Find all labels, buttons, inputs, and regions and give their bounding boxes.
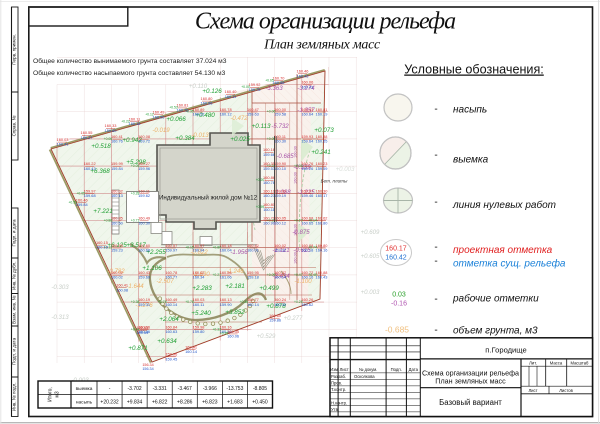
svg-text:+2.181: +2.181 bbox=[225, 283, 244, 290]
svg-text:160.63: 160.63 bbox=[165, 329, 177, 334]
svg-text:160.94: 160.94 bbox=[193, 248, 206, 253]
svg-text:160.99: 160.99 bbox=[263, 220, 275, 225]
svg-text:Инв. № дубл.: Инв. № дубл. bbox=[11, 262, 16, 290]
svg-text:Лист: Лист bbox=[340, 367, 349, 372]
svg-text:0.03: 0.03 bbox=[392, 292, 406, 299]
svg-text:159.84: 159.84 bbox=[76, 202, 89, 207]
svg-text:160.22: 160.22 bbox=[193, 112, 205, 117]
svg-text:-13.753: -13.753 bbox=[226, 386, 243, 392]
svg-text:Базовый вариант: Базовый вариант bbox=[439, 398, 502, 407]
svg-text:Дата: Дата bbox=[409, 367, 419, 372]
svg-text:Подп.: Подп. bbox=[391, 367, 402, 372]
svg-text:+1.683: +1.683 bbox=[227, 400, 243, 406]
svg-text:+0.15: +0.15 bbox=[185, 246, 194, 250]
svg-text:159.19: 159.19 bbox=[274, 193, 286, 198]
svg-text:159.53: 159.53 bbox=[263, 166, 275, 171]
svg-text:Разраб.: Разраб. bbox=[331, 374, 346, 379]
svg-text:+0.05: +0.05 bbox=[76, 191, 85, 195]
svg-text:+7.221: +7.221 bbox=[93, 208, 112, 215]
svg-text:160.88: 160.88 bbox=[273, 80, 285, 85]
svg-text:160.14: 160.14 bbox=[165, 302, 178, 307]
svg-text:+0.277: +0.277 bbox=[284, 315, 303, 322]
svg-text:-0.303: -0.303 bbox=[51, 284, 69, 291]
svg-text:160.68: 160.68 bbox=[138, 248, 150, 253]
svg-text:Схема организации рельефа: Схема организации рельефа bbox=[195, 9, 456, 35]
svg-text:160.14: 160.14 bbox=[185, 349, 198, 354]
svg-text:+0.14: +0.14 bbox=[308, 219, 317, 223]
svg-text:+0.05: +0.05 bbox=[131, 164, 140, 168]
svg-text:159.64: 159.64 bbox=[301, 139, 314, 144]
svg-text:160.11: 160.11 bbox=[263, 207, 275, 212]
svg-text:160.26: 160.26 bbox=[301, 166, 313, 171]
svg-text:Взам. инв. №: Взам. инв. № bbox=[11, 295, 16, 324]
svg-text:160.64: 160.64 bbox=[301, 112, 314, 117]
svg-text:161.06: 161.06 bbox=[220, 275, 232, 280]
svg-text:160.55: 160.55 bbox=[316, 139, 328, 144]
svg-text:+0.634: +0.634 bbox=[157, 338, 177, 345]
svg-text:160.27: 160.27 bbox=[81, 135, 93, 140]
svg-text:+0.59: +0.59 bbox=[256, 205, 265, 209]
svg-text:-0.313: -0.313 bbox=[51, 314, 69, 321]
svg-text:159.18: 159.18 bbox=[247, 275, 259, 280]
svg-text:159.62: 159.62 bbox=[138, 193, 150, 198]
svg-text:160.43: 160.43 bbox=[316, 275, 328, 280]
svg-text:насыпь: насыпь bbox=[453, 105, 487, 116]
svg-text:+0.003: +0.003 bbox=[336, 166, 355, 173]
svg-text:160.08: 160.08 bbox=[116, 287, 128, 292]
svg-text:+0.06: +0.06 bbox=[267, 110, 276, 114]
svg-text:159.31: 159.31 bbox=[138, 302, 150, 307]
svg-text:Листов: Листов bbox=[559, 388, 573, 393]
svg-text:-5.732: -5.732 bbox=[271, 123, 289, 130]
svg-text:Справ. №: Справ. № bbox=[11, 116, 16, 137]
svg-text:+0.09: +0.09 bbox=[267, 273, 276, 277]
svg-text:Пров.: Пров. bbox=[331, 381, 342, 386]
svg-text:+0.12: +0.12 bbox=[145, 112, 154, 116]
svg-text:+0.529: +0.529 bbox=[257, 333, 276, 340]
svg-text:выемка: выемка bbox=[76, 387, 93, 392]
svg-text:-: - bbox=[434, 325, 437, 336]
svg-text:+0.78: +0.78 bbox=[185, 300, 194, 304]
svg-text:п.Городище: п.Городище bbox=[485, 345, 526, 354]
svg-text:+0.53: +0.53 bbox=[169, 106, 178, 110]
svg-text:Общее количество вынимаемого г: Общее количество вынимаемого грунта сост… bbox=[33, 57, 227, 65]
svg-text:159.72: 159.72 bbox=[138, 139, 150, 144]
svg-text:159.97: 159.97 bbox=[165, 248, 177, 253]
svg-text:159.60: 159.60 bbox=[105, 128, 118, 133]
svg-text:160.34: 160.34 bbox=[193, 275, 206, 280]
svg-text:160.02: 160.02 bbox=[111, 275, 123, 280]
svg-text:159.75: 159.75 bbox=[249, 87, 261, 92]
svg-text:+0.21: +0.21 bbox=[212, 273, 221, 277]
svg-text:159.80: 159.80 bbox=[193, 329, 206, 334]
svg-text:-3.966: -3.966 bbox=[203, 386, 217, 392]
svg-text:№ докум.: № докум. bbox=[359, 367, 377, 372]
svg-text:159.69: 159.69 bbox=[138, 275, 150, 280]
svg-text:+0.65: +0.65 bbox=[265, 78, 274, 82]
svg-text:-: - bbox=[434, 256, 437, 267]
svg-text:160.43: 160.43 bbox=[301, 84, 313, 89]
svg-text:Инв. № подл.: Инв. № подл. bbox=[11, 382, 16, 411]
svg-text:160.14: 160.14 bbox=[274, 275, 287, 280]
svg-text:+0.71: +0.71 bbox=[131, 219, 140, 223]
svg-text:м3: м3 bbox=[55, 391, 61, 397]
svg-text:выемка: выемка bbox=[453, 155, 489, 166]
svg-text:+0.74: +0.74 bbox=[308, 246, 317, 250]
svg-text:Подп. и дата: Подп. и дата bbox=[11, 219, 16, 247]
svg-text:-: - bbox=[434, 104, 437, 115]
svg-text:Общее количество насыпаемого г: Общее количество насыпаемого грунта сост… bbox=[33, 69, 226, 77]
svg-text:План земляных масс: План земляных масс bbox=[435, 377, 506, 386]
svg-text:159.59: 159.59 bbox=[316, 166, 328, 171]
svg-text:160.00: 160.00 bbox=[294, 224, 298, 236]
svg-text:отметка сущ. рельефа: отметка сущ. рельефа bbox=[453, 258, 566, 270]
svg-text:160.42: 160.42 bbox=[385, 255, 407, 262]
svg-text:Масштаб: Масштаб bbox=[571, 360, 590, 365]
svg-text:160.04: 160.04 bbox=[220, 248, 233, 253]
svg-text:Условные обозначения:: Условные обозначения: bbox=[404, 63, 544, 77]
svg-text:160.41: 160.41 bbox=[57, 142, 69, 147]
svg-text:-0.013: -0.013 bbox=[191, 132, 209, 139]
svg-text:160.75: 160.75 bbox=[177, 107, 189, 112]
svg-text:рабочие отметки: рабочие отметки bbox=[452, 293, 539, 305]
svg-text:+0.110: +0.110 bbox=[189, 83, 208, 90]
svg-text:+0.605: +0.605 bbox=[361, 253, 380, 260]
svg-text:160.10: 160.10 bbox=[274, 166, 287, 171]
svg-text:160.12: 160.12 bbox=[274, 220, 286, 225]
svg-text:160.55: 160.55 bbox=[153, 114, 165, 119]
svg-text:насыпь: насыпь bbox=[76, 401, 93, 406]
svg-text:+2.283: +2.283 bbox=[192, 285, 212, 292]
svg-text:+0.20: +0.20 bbox=[256, 178, 265, 182]
svg-text:+0.00: +0.00 bbox=[241, 85, 250, 89]
svg-text:-0.472: -0.472 bbox=[230, 115, 248, 122]
svg-text:Подп. и дата: Подп. и дата bbox=[11, 338, 16, 366]
svg-text:+0.06: +0.06 bbox=[104, 137, 113, 141]
svg-text:+0.003: +0.003 bbox=[361, 289, 380, 296]
svg-text:Масса: Масса bbox=[550, 360, 563, 365]
svg-text:+6.823: +6.823 bbox=[202, 400, 218, 406]
svg-text:-3.331: -3.331 bbox=[153, 386, 167, 392]
svg-text:160.77: 160.77 bbox=[165, 275, 177, 280]
svg-text:+0.76: +0.76 bbox=[158, 300, 167, 304]
svg-text:159.86: 159.86 bbox=[269, 318, 281, 323]
svg-text:159.84: 159.84 bbox=[111, 166, 124, 171]
svg-text:+0.28: +0.28 bbox=[131, 191, 140, 195]
svg-text:+0.241: +0.241 bbox=[311, 149, 330, 156]
svg-text:159.96: 159.96 bbox=[138, 166, 150, 171]
svg-text:160.19: 160.19 bbox=[316, 112, 328, 117]
svg-text:156.34: 156.34 bbox=[142, 367, 153, 371]
svg-text:159.23: 159.23 bbox=[111, 248, 123, 253]
svg-text:Лист: Лист bbox=[528, 388, 537, 393]
svg-text:Итого,: Итого, bbox=[48, 387, 54, 402]
svg-text:160.30: 160.30 bbox=[274, 302, 287, 307]
svg-text:+0.609: +0.609 bbox=[361, 229, 380, 236]
svg-text:Утв.: Утв. bbox=[331, 407, 339, 412]
svg-text:159.63: 159.63 bbox=[247, 112, 259, 117]
svg-text:+0.47: +0.47 bbox=[294, 273, 303, 277]
svg-text:+8.286: +8.286 bbox=[177, 400, 193, 406]
svg-text:160.19: 160.19 bbox=[96, 245, 108, 250]
svg-text:+0.518: +0.518 bbox=[91, 143, 111, 150]
svg-text:160.13: 160.13 bbox=[111, 193, 123, 198]
svg-text:160.76: 160.76 bbox=[111, 139, 123, 144]
svg-text:+0.499: +0.499 bbox=[259, 285, 279, 292]
svg-text:Индивидуальный жилой дом №12: Индивидуальный жилой дом №12 bbox=[159, 195, 258, 202]
svg-text:-: - bbox=[434, 294, 437, 305]
svg-text:-: - bbox=[434, 197, 437, 208]
svg-text:+9.834: +9.834 bbox=[127, 400, 143, 406]
svg-text:+0.113: +0.113 bbox=[252, 123, 271, 130]
svg-text:160.12: 160.12 bbox=[220, 112, 232, 117]
svg-text:160.78: 160.78 bbox=[263, 180, 275, 185]
svg-text:-1.644: -1.644 bbox=[126, 283, 144, 290]
svg-text:+0.066: +0.066 bbox=[166, 116, 186, 123]
svg-text:объем грунта, м3: объем грунта, м3 bbox=[453, 325, 538, 337]
svg-text:159.66: 159.66 bbox=[263, 152, 275, 157]
svg-text:-0.16: -0.16 bbox=[391, 301, 407, 308]
svg-text:160.01: 160.01 bbox=[247, 248, 259, 253]
svg-text:-: - bbox=[434, 150, 437, 161]
svg-text:+6.822: +6.822 bbox=[152, 400, 168, 406]
svg-text:+0.80: +0.80 bbox=[212, 246, 221, 250]
svg-text:План земляных масс: План земляных масс bbox=[263, 38, 381, 53]
svg-text:160.50: 160.50 bbox=[111, 220, 124, 225]
svg-text:-3.363: -3.363 bbox=[265, 85, 283, 92]
svg-text:160.06: 160.06 bbox=[227, 333, 239, 338]
svg-text:160.11: 160.11 bbox=[193, 302, 205, 307]
svg-text:Перв. примен.: Перв. примен. bbox=[11, 34, 16, 65]
svg-text:линия нулевых работ: линия нулевых работ bbox=[452, 199, 556, 211]
svg-text:160.17: 160.17 bbox=[385, 246, 407, 253]
svg-text:+0.22: +0.22 bbox=[121, 119, 130, 123]
svg-text:+20.232: +20.232 bbox=[100, 400, 118, 406]
svg-text:159.90: 159.90 bbox=[220, 302, 233, 307]
svg-text:159.32: 159.32 bbox=[274, 248, 286, 253]
svg-text:+0.25: +0.25 bbox=[294, 300, 303, 304]
svg-text:160.00: 160.00 bbox=[294, 252, 298, 264]
svg-text:160.43: 160.43 bbox=[84, 166, 96, 171]
svg-text:159.46: 159.46 bbox=[301, 193, 313, 198]
svg-text:160.00: 160.00 bbox=[294, 146, 298, 158]
svg-text:160.64: 160.64 bbox=[136, 330, 149, 335]
svg-text:159.58: 159.58 bbox=[274, 112, 286, 117]
svg-text:+3.852: +3.852 bbox=[225, 309, 245, 316]
svg-text:160.17: 160.17 bbox=[316, 193, 328, 198]
svg-text:+0.33: +0.33 bbox=[294, 164, 303, 168]
svg-text:+0.88: +0.88 bbox=[104, 219, 113, 223]
svg-text:+0.38: +0.38 bbox=[131, 300, 140, 304]
svg-text:160.43: 160.43 bbox=[297, 73, 309, 78]
svg-text:Бет. плиты: Бет. плиты bbox=[321, 179, 348, 184]
svg-text:160.30: 160.30 bbox=[138, 220, 151, 225]
svg-text:-: - bbox=[434, 242, 437, 253]
svg-text:+0.85: +0.85 bbox=[220, 332, 229, 336]
svg-text:Н.контр.: Н.контр. bbox=[331, 400, 347, 405]
svg-text:проектная отметка: проектная отметка bbox=[453, 245, 553, 256]
svg-text:Т.контр.: Т.контр. bbox=[331, 387, 346, 392]
svg-text:160.14: 160.14 bbox=[247, 302, 260, 307]
svg-text:160.00: 160.00 bbox=[294, 172, 298, 184]
svg-text:160.62: 160.62 bbox=[301, 302, 313, 307]
svg-text:+0.871: +0.871 bbox=[128, 345, 147, 352]
svg-text:160.16: 160.16 bbox=[316, 248, 328, 253]
svg-text:160.23: 160.23 bbox=[263, 193, 275, 198]
svg-text:-0.685: -0.685 bbox=[276, 153, 294, 160]
svg-text:160.30: 160.30 bbox=[274, 139, 287, 144]
svg-text:160.18: 160.18 bbox=[129, 121, 141, 126]
svg-text:-3.702: -3.702 bbox=[128, 386, 142, 392]
svg-text:+0.50: +0.50 bbox=[68, 200, 77, 204]
svg-text:-3.467: -3.467 bbox=[178, 386, 192, 392]
svg-text:+0.450: +0.450 bbox=[252, 400, 268, 406]
svg-text:+0.49: +0.49 bbox=[308, 273, 317, 277]
svg-text:Осколкова: Осколкова bbox=[354, 374, 375, 379]
svg-text:+0.36: +0.36 bbox=[240, 300, 249, 304]
svg-text:-0.019: -0.019 bbox=[152, 127, 170, 134]
svg-text:+0.73: +0.73 bbox=[294, 219, 303, 223]
svg-text:Изм: Изм bbox=[330, 367, 338, 372]
svg-text:160.80: 160.80 bbox=[316, 220, 329, 225]
svg-text:159.45: 159.45 bbox=[165, 356, 177, 361]
svg-text:+5.240: +5.240 bbox=[191, 310, 211, 317]
svg-text:+2.064: +2.064 bbox=[159, 316, 179, 323]
svg-text:-0.685: -0.685 bbox=[385, 325, 409, 335]
svg-text:+0.025: +0.025 bbox=[230, 136, 250, 143]
svg-text:160.11: 160.11 bbox=[225, 94, 237, 99]
svg-text:-1.956: -1.956 bbox=[230, 249, 248, 256]
svg-text:-8.805: -8.805 bbox=[253, 386, 267, 392]
svg-text:160.66: 160.66 bbox=[201, 101, 213, 106]
svg-text:Лит.: Лит. bbox=[529, 360, 537, 365]
